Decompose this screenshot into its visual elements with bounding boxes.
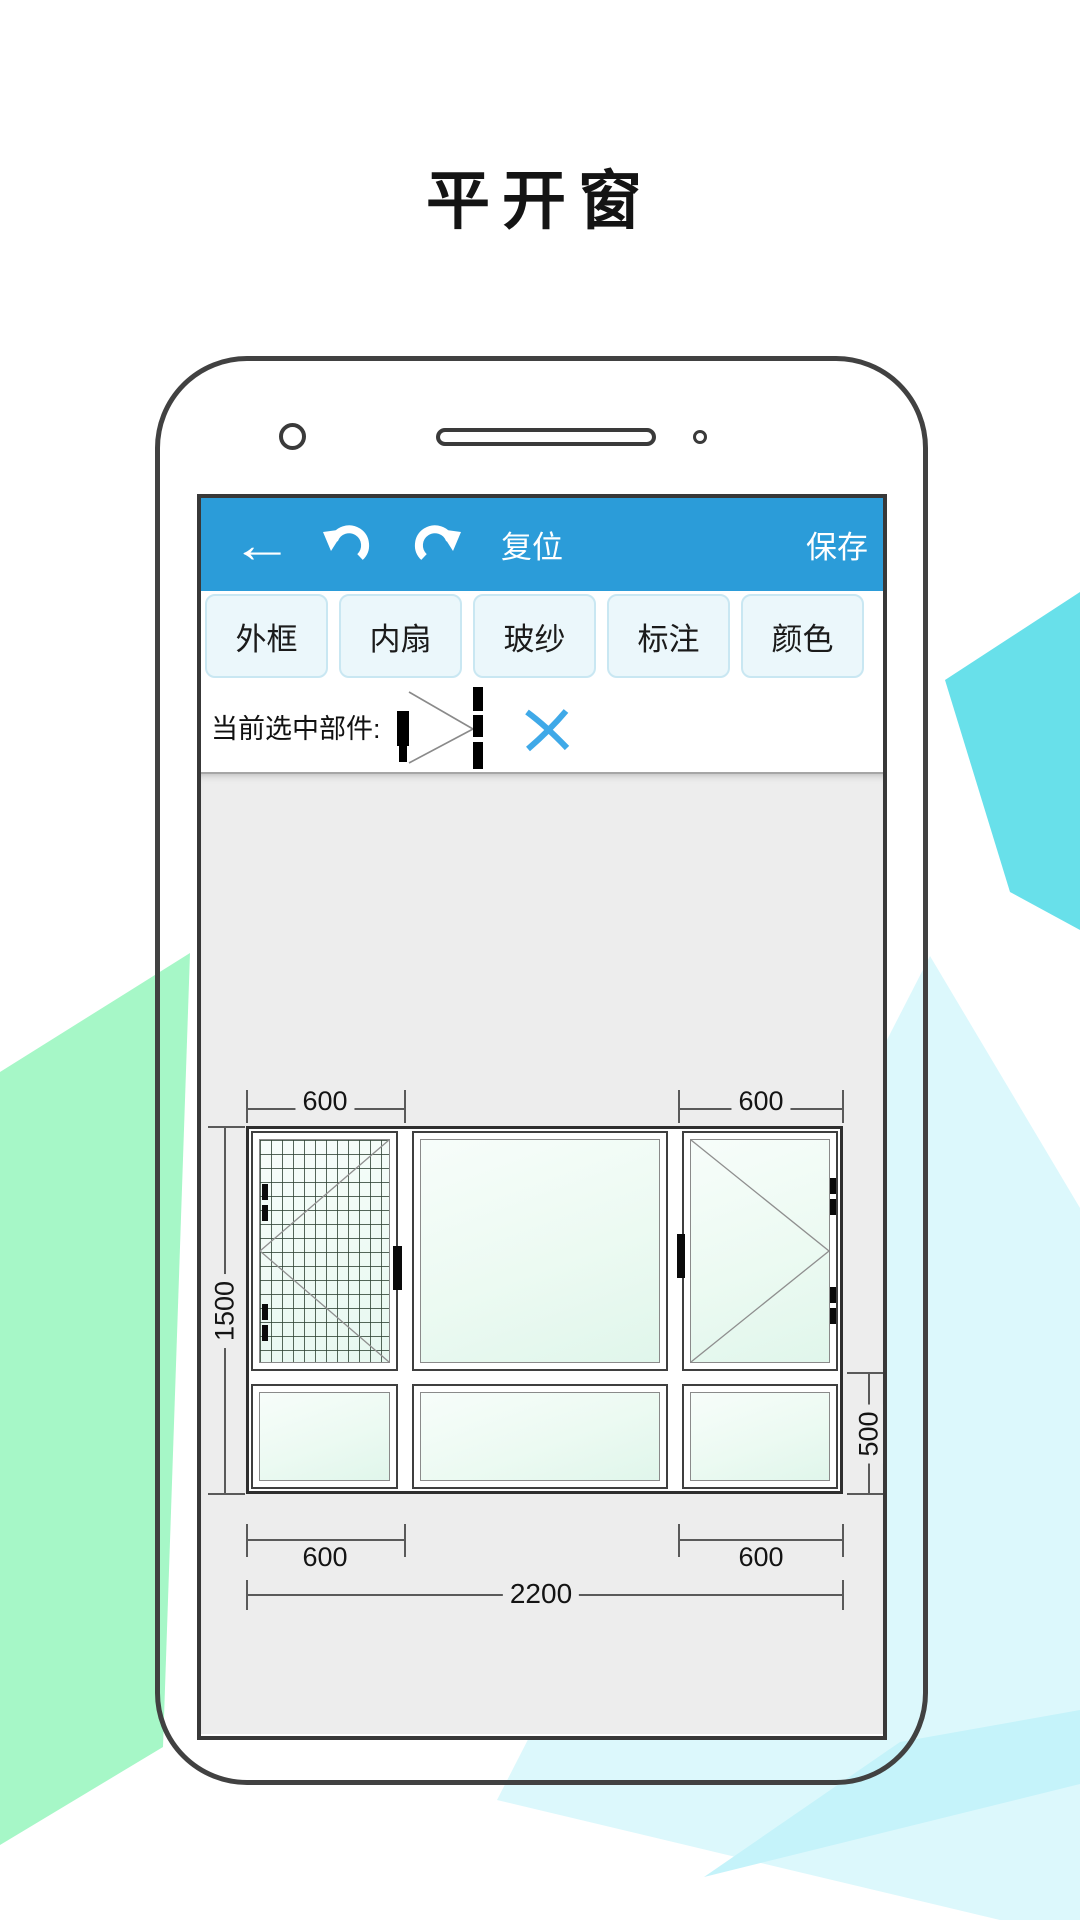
dim-left-height[interactable]: 1500: [210, 1274, 241, 1348]
tab-glass-screen[interactable]: 玻纱: [473, 594, 596, 678]
tab-row: 外框 内扇 玻纱 标注 颜色: [201, 591, 883, 681]
panel-screen-sash[interactable]: [251, 1131, 398, 1371]
blue-x-icon[interactable]: [524, 708, 570, 752]
save-button[interactable]: 保存: [806, 498, 868, 591]
panel-fixed-bottom-center[interactable]: [412, 1384, 668, 1489]
dim-top-left[interactable]: 600: [295, 1086, 354, 1117]
sash-profile-icon: [395, 687, 489, 769]
handle-icon: [677, 1234, 685, 1278]
panel-fixed-bottom-left[interactable]: [251, 1384, 398, 1489]
app-screen: ← 复位 保存 外框 内扇 玻纱 标注 颜色 当前选中部件:: [197, 494, 887, 1740]
hinge-icon: [830, 1308, 836, 1324]
speaker-slot: [436, 428, 656, 446]
tab-outer-frame[interactable]: 外框: [205, 594, 328, 678]
sensor-dot-icon: [693, 430, 707, 444]
back-arrow-icon[interactable]: ←: [231, 498, 294, 591]
panel-fixed-center[interactable]: [412, 1131, 668, 1371]
hinge-icon: [830, 1199, 836, 1215]
hinge-icon: [830, 1287, 836, 1303]
hinge-icon: [262, 1304, 268, 1320]
tab-dimensions[interactable]: 标注: [607, 594, 730, 678]
panel-fixed-bottom-right[interactable]: [682, 1384, 838, 1489]
handle-icon: [393, 1246, 402, 1290]
selected-component-row: 当前选中部件:: [201, 681, 883, 772]
deco-teal-diamond: [945, 592, 1080, 930]
dim-total-width[interactable]: 2200: [503, 1578, 579, 1610]
tab-color[interactable]: 颜色: [741, 594, 864, 678]
dim-top-right[interactable]: 600: [731, 1086, 790, 1117]
toolbar: ← 复位 保存: [201, 498, 883, 591]
camera-icon: [279, 423, 306, 450]
tab-inner-sash[interactable]: 内扇: [339, 594, 462, 678]
panel-casement-right[interactable]: [682, 1131, 838, 1371]
hinge-icon: [262, 1184, 268, 1200]
redo-icon[interactable]: [413, 498, 465, 591]
hinge-icon: [262, 1205, 268, 1221]
reset-button[interactable]: 复位: [501, 498, 563, 591]
dim-bottom-left[interactable]: 600: [295, 1542, 354, 1573]
selected-component-label: 当前选中部件:: [211, 681, 381, 772]
design-canvas[interactable]: 600 600 1500 500 600 600 2200: [201, 774, 883, 1734]
hinge-icon: [830, 1178, 836, 1194]
undo-icon[interactable]: [319, 498, 371, 591]
dim-bottom-right[interactable]: 600: [731, 1542, 790, 1573]
hinge-icon: [262, 1325, 268, 1341]
dim-right-height[interactable]: 500: [854, 1404, 885, 1463]
window-frame[interactable]: [246, 1126, 843, 1494]
